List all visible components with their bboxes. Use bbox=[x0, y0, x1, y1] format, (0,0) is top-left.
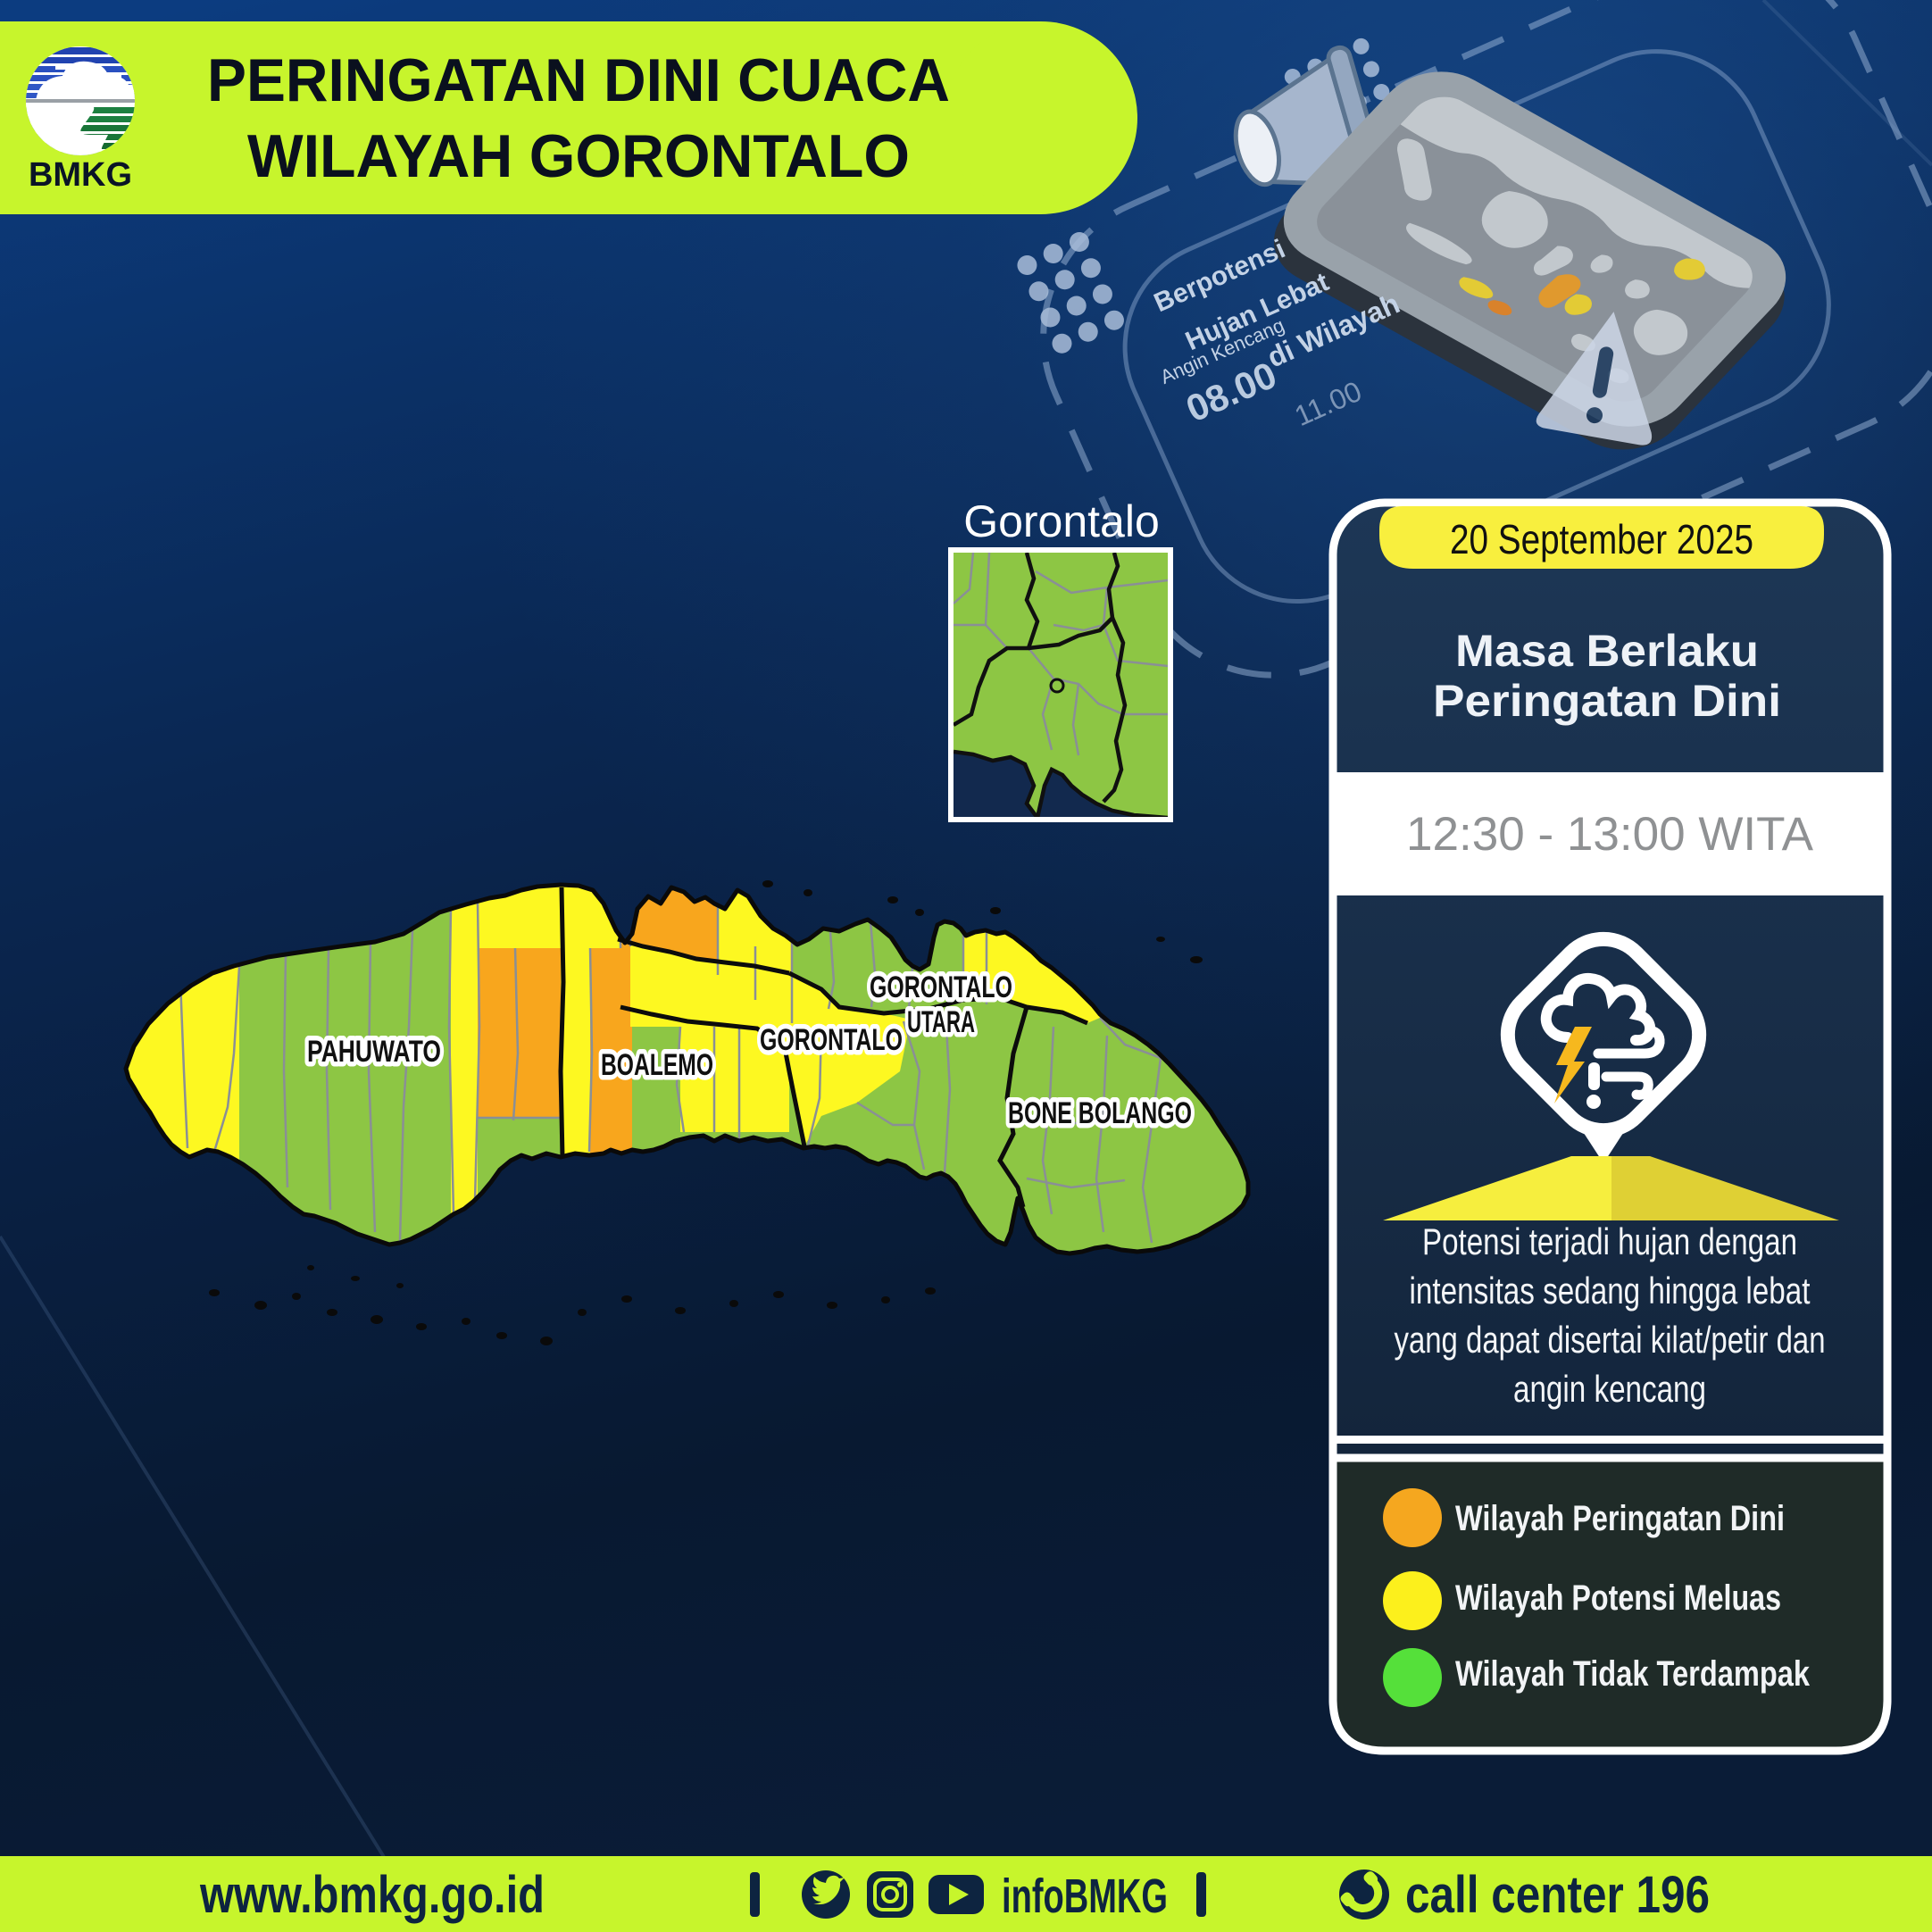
svg-text:Masa Berlaku: Masa Berlaku bbox=[1455, 626, 1759, 676]
svg-text:PAHUWATO: PAHUWATO bbox=[307, 1035, 441, 1069]
svg-text:UTARA: UTARA bbox=[907, 1005, 975, 1039]
svg-text:20 September 2025: 20 September 2025 bbox=[1450, 516, 1753, 562]
svg-text:Gorontalo: Gorontalo bbox=[963, 496, 1160, 546]
svg-text:Potensi terjadi hujan dengan: Potensi terjadi hujan dengan bbox=[1422, 1220, 1797, 1262]
svg-text:12:30 - 13:00 WITA: 12:30 - 13:00 WITA bbox=[1406, 808, 1814, 861]
svg-text:BONE BOLANGO: BONE BOLANGO bbox=[1008, 1096, 1192, 1130]
svg-text:GORONTALO: GORONTALO bbox=[870, 970, 1012, 1004]
svg-text:Wilayah Potensi Meluas: Wilayah Potensi Meluas bbox=[1455, 1578, 1781, 1618]
svg-text:intensitas sedang hingga lebat: intensitas sedang hingga lebat bbox=[1410, 1270, 1811, 1312]
svg-text:angin kencang: angin kencang bbox=[1513, 1368, 1706, 1410]
svg-text:WILAYAH GORONTALO: WILAYAH GORONTALO bbox=[247, 122, 910, 190]
svg-text:GORONTALO: GORONTALO bbox=[760, 1023, 903, 1057]
svg-text:Wilayah Peringatan Dini: Wilayah Peringatan Dini bbox=[1455, 1499, 1785, 1538]
svg-text:infoBMKG: infoBMKG bbox=[1002, 1870, 1168, 1923]
svg-text:BMKG: BMKG bbox=[29, 156, 132, 194]
svg-text:yang dapat disertai kilat/peti: yang dapat disertai kilat/petir dan bbox=[1395, 1319, 1826, 1361]
svg-text:Peringatan Dini: Peringatan Dini bbox=[1433, 676, 1781, 726]
svg-text:BOALEMO: BOALEMO bbox=[601, 1048, 713, 1082]
svg-text:PERINGATAN DINI CUACA: PERINGATAN DINI CUACA bbox=[207, 46, 950, 114]
svg-text:call center 196: call center 196 bbox=[1405, 1866, 1710, 1924]
svg-text:www.bmkg.go.id: www.bmkg.go.id bbox=[199, 1866, 545, 1924]
svg-text:Wilayah Tidak Terdampak: Wilayah Tidak Terdampak bbox=[1455, 1654, 1811, 1694]
